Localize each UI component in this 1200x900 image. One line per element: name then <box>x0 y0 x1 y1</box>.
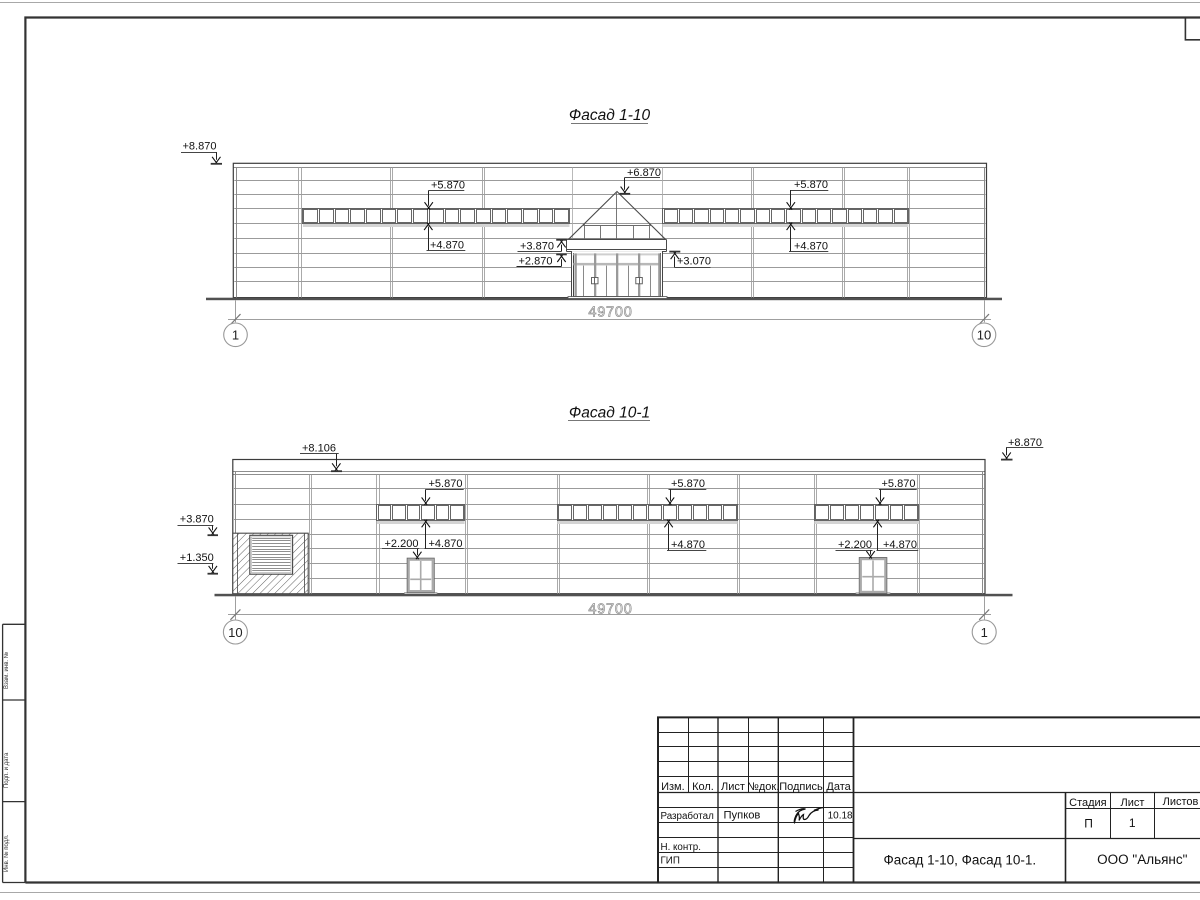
svg-text:49700: 49700 <box>588 601 632 617</box>
svg-text:+2.200: +2.200 <box>838 539 872 551</box>
svg-text:1: 1 <box>232 328 239 343</box>
svg-text:+3.870: +3.870 <box>520 241 554 253</box>
svg-text:49700: 49700 <box>588 305 632 321</box>
svg-text:Листов: Листов <box>1163 796 1199 808</box>
svg-text:+4.870: +4.870 <box>430 239 464 251</box>
svg-text:Фасад 1-10, Фасад 10-1.: Фасад 1-10, Фасад 10-1. <box>883 853 1036 868</box>
svg-text:+5.870: +5.870 <box>429 478 463 490</box>
svg-text:ГИП: ГИП <box>661 856 680 867</box>
svg-text:+8.106: +8.106 <box>302 443 336 455</box>
svg-text:П: П <box>1084 817 1093 831</box>
svg-text:Фасад 10-1: Фасад 10-1 <box>569 405 650 422</box>
svg-text:10.18: 10.18 <box>828 810 853 821</box>
svg-text:+4.870: +4.870 <box>794 240 828 252</box>
svg-text:+2.870: +2.870 <box>519 255 553 267</box>
svg-text:Кол.: Кол. <box>692 781 714 793</box>
svg-text:Лист: Лист <box>721 781 745 793</box>
svg-text:Стадия: Стадия <box>1069 797 1107 809</box>
svg-text:Подпись: Подпись <box>779 781 823 793</box>
svg-text:Взам. инв. №: Взам. инв. № <box>3 652 10 689</box>
svg-text:+1.350: +1.350 <box>180 552 214 564</box>
svg-text:+3.070: +3.070 <box>677 256 711 268</box>
svg-text:Подп. и дата: Подп. и дата <box>4 752 10 788</box>
svg-text:+3.870: +3.870 <box>180 513 214 525</box>
svg-text:Н. контр.: Н. контр. <box>661 842 701 853</box>
svg-text:+4.870: +4.870 <box>671 539 705 551</box>
svg-text:ООО "Альянс": ООО "Альянс" <box>1097 852 1187 867</box>
svg-text:+5.870: +5.870 <box>671 478 705 490</box>
svg-text:10: 10 <box>977 328 991 343</box>
svg-text:+5.870: +5.870 <box>794 179 828 191</box>
svg-text:Пупков: Пупков <box>724 809 761 821</box>
svg-text:+5.870: +5.870 <box>431 179 465 191</box>
svg-text:1: 1 <box>981 625 988 640</box>
svg-text:Разработал: Разработал <box>661 811 715 822</box>
svg-text:Дата: Дата <box>826 781 851 793</box>
svg-text:Фасад 1-10: Фасад 1-10 <box>569 107 651 124</box>
svg-text:Инв. № подл.: Инв. № подл. <box>3 834 10 872</box>
svg-text:10: 10 <box>228 625 242 640</box>
svg-text:Лист: Лист <box>1121 797 1145 809</box>
svg-text:Изм.: Изм. <box>661 781 685 793</box>
svg-text:1: 1 <box>1129 816 1136 830</box>
svg-text:№док.: №док. <box>747 781 779 793</box>
svg-text:+4.870: +4.870 <box>883 539 917 551</box>
svg-text:+8.870: +8.870 <box>183 141 217 153</box>
svg-text:+5.870: +5.870 <box>882 478 916 490</box>
